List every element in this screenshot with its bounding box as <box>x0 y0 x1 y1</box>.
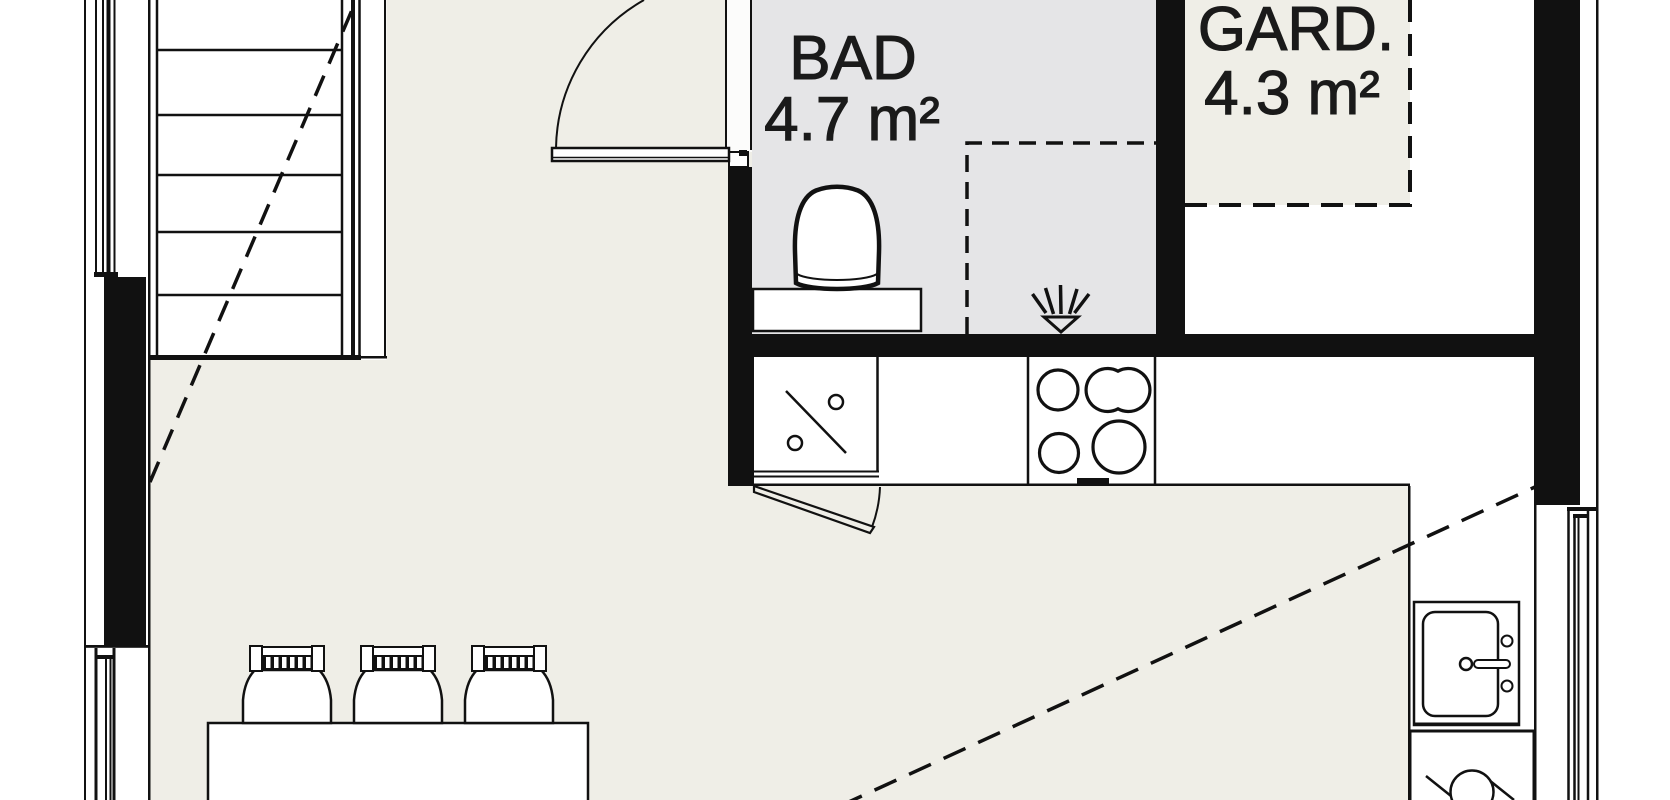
svg-text:GARD.: GARD. <box>1198 0 1394 64</box>
svg-text:4.3 m²: 4.3 m² <box>1204 59 1380 128</box>
svg-text:4.7 m²: 4.7 m² <box>764 85 940 154</box>
svg-text:BAD: BAD <box>789 24 916 93</box>
